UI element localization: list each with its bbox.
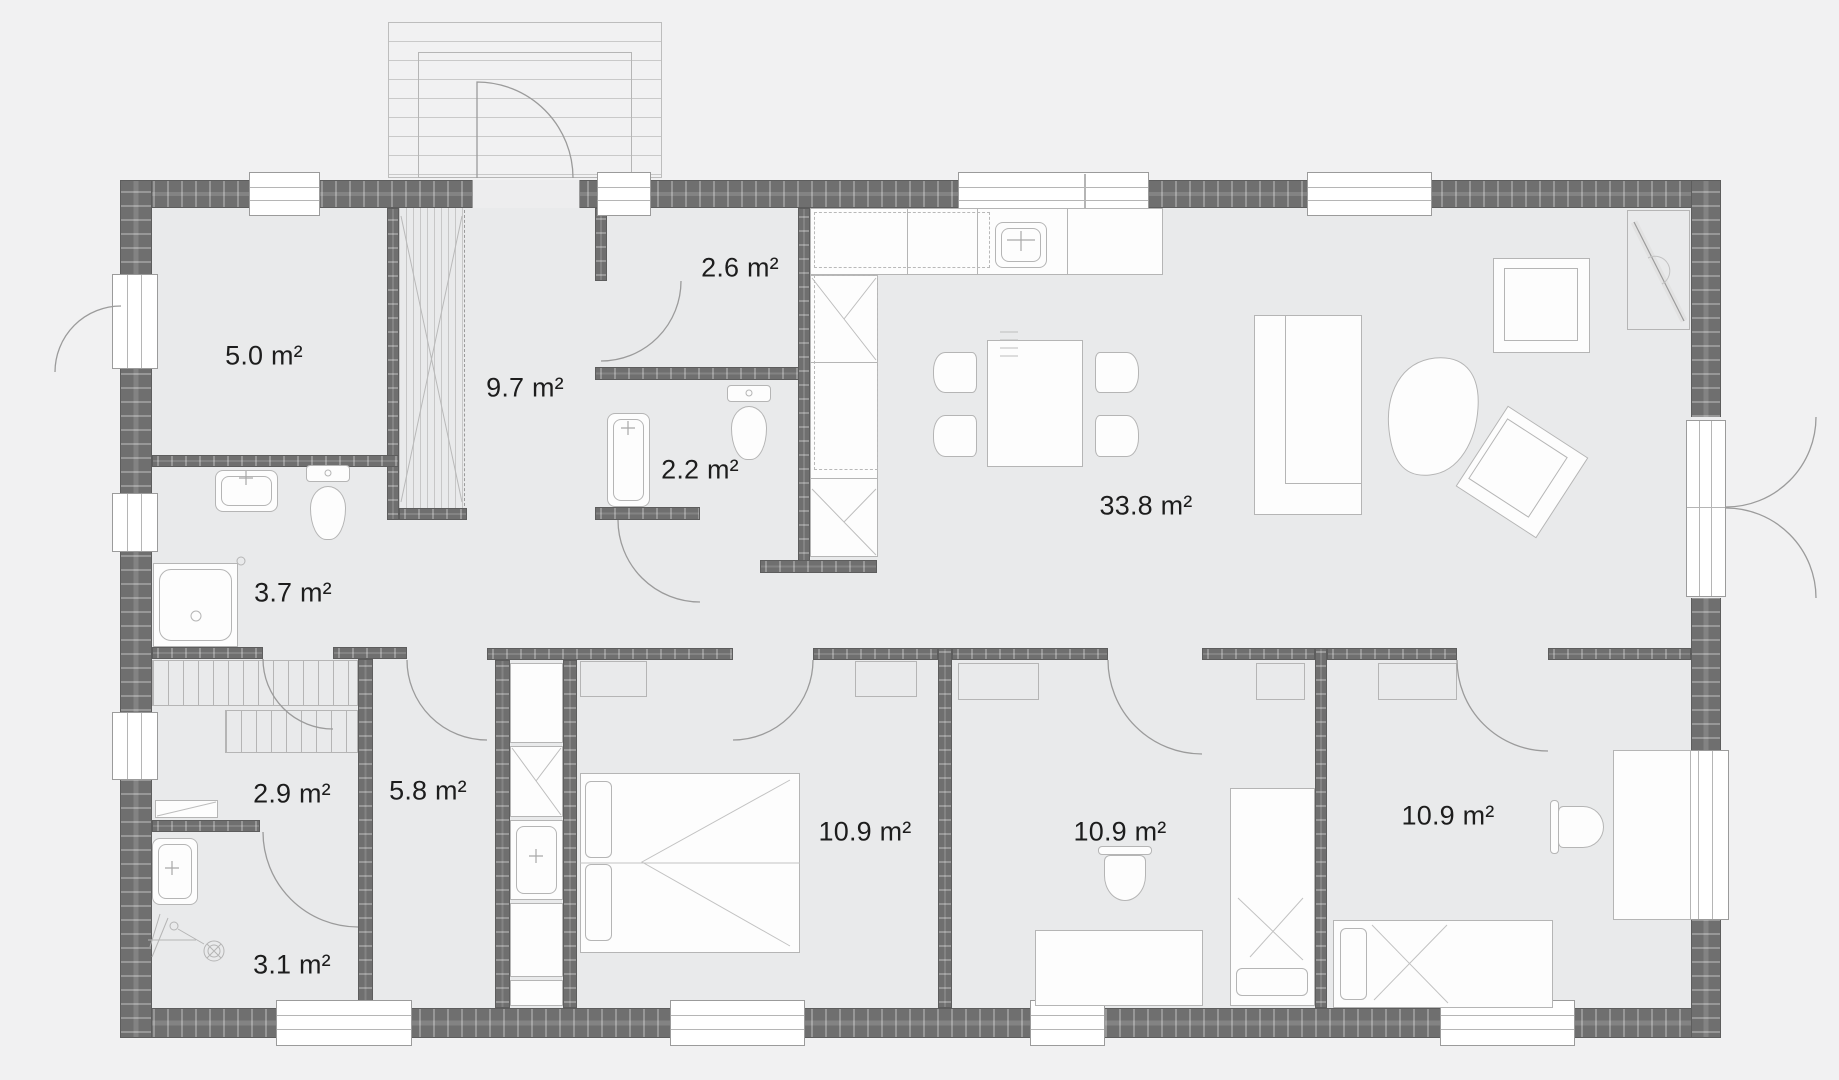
room-area-label: 10.9 m² [1074,817,1167,848]
room-area-label: 5.8 m² [389,776,467,807]
corridor-door-swing [618,520,700,602]
washer-mark [512,748,561,815]
toilet-button [746,390,752,396]
casement-swing [55,306,121,372]
room-area-label: 10.9 m² [819,817,912,848]
room-area-label: 3.7 m² [254,578,332,609]
floor-drain [204,941,224,961]
wc-door-swing [601,281,681,361]
fridge-mark [812,489,876,555]
bathroom-door-swing [263,659,333,729]
room-area-label: 9.7 m² [486,373,564,404]
radiator-mark [157,802,216,816]
patio-door-swing [1726,508,1816,598]
shower-drain [191,611,201,621]
coffee-table [1388,358,1478,476]
bedroom-door-swing [1457,660,1548,751]
toilet-button [325,470,331,476]
entrance-door-swing [477,82,573,178]
shower-room-door-swing [263,832,358,927]
room-area-label: 2.2 m² [661,455,739,486]
room-area-label: 2.6 m² [701,253,779,284]
shower-knob [237,557,245,565]
shower-head-symbol [148,914,204,957]
floor-plan: 5.0 m² 9.7 m² 2.6 m² 2.2 m² 33.8 m² 3.7 … [0,0,1839,1080]
room-area-label: 5.0 m² [225,341,303,372]
linework-overlay [0,0,1839,1080]
vent-lines [1000,332,1018,356]
room-area-label: 3.1 m² [253,950,331,981]
room-area-label: 10.9 m² [1402,801,1495,832]
room-area-label: 33.8 m² [1100,491,1193,522]
bedroom-door-swing [1108,660,1202,754]
dishwasher-mark [812,278,876,360]
patio-door-swing [1726,417,1816,507]
bed-fold-lines [580,780,1448,1003]
tv-icon [1634,222,1684,321]
room-area-label: 2.9 m² [253,779,331,810]
closet-marks [401,216,462,502]
bedroom-door-swing [733,660,813,740]
hallway-door-swing [407,660,487,740]
